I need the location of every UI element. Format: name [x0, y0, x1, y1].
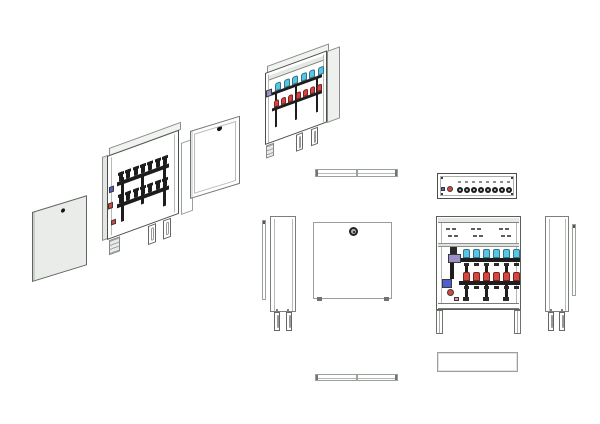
leg-slot [551, 315, 553, 328]
nut [464, 263, 469, 266]
tv-circle [492, 187, 498, 193]
cabinet-leg [514, 310, 521, 334]
vent-slot [507, 235, 511, 237]
tv-dash [493, 181, 496, 183]
nut [484, 286, 489, 289]
drain-fitting-red [111, 219, 116, 226]
iso-front-door [190, 116, 240, 199]
nut [494, 286, 499, 289]
leg-slot [151, 227, 154, 241]
vent-slot [479, 235, 483, 237]
screw-dot [550, 309, 552, 311]
leg-slot [314, 130, 316, 143]
vent-slot [505, 228, 509, 230]
vent-slot [473, 235, 477, 237]
end-cap [395, 375, 397, 380]
screw-dot [276, 309, 278, 311]
tv-circle [478, 187, 484, 193]
base-rail [438, 303, 519, 309]
valve [119, 193, 123, 203]
tv-circle [506, 187, 512, 193]
nut [474, 286, 479, 289]
lock-icon [217, 125, 222, 132]
supply-fitting-blue [441, 187, 445, 191]
valve [148, 183, 152, 193]
cap-blue [493, 249, 500, 258]
leg-slot [562, 315, 564, 328]
cabinet-leg [436, 310, 443, 334]
door-side-view-right [572, 224, 576, 296]
frame-line [274, 219, 275, 311]
lock-icon [61, 208, 65, 213]
nut [494, 263, 499, 266]
tv-dash [479, 181, 482, 183]
drain-valve-red [447, 289, 454, 296]
cap-red [463, 272, 470, 281]
valve [134, 166, 138, 176]
lock-icon [349, 227, 358, 236]
door-foot [384, 297, 389, 301]
fitting-pink [454, 297, 459, 301]
base-bracket [266, 143, 274, 159]
frame-line [441, 223, 442, 303]
return-fitting-red [447, 186, 453, 192]
cabinet-leg [274, 312, 280, 331]
cap-red [483, 272, 490, 281]
return-fitting-red [108, 202, 113, 210]
vent-slot [446, 228, 450, 230]
leg-slot [299, 136, 301, 149]
tv-dash [458, 181, 461, 183]
tv-dash [486, 181, 489, 183]
leg-slot [289, 315, 291, 328]
end-cap [316, 170, 318, 176]
corner-screw [511, 193, 514, 196]
cap-blue [503, 249, 510, 258]
vent-slot [452, 228, 456, 230]
nut [514, 286, 519, 289]
elbow-fitting [483, 297, 489, 301]
valve [148, 161, 152, 171]
supply-fitting-blue [109, 185, 114, 193]
frame-line [323, 55, 324, 123]
screw-dot [287, 309, 289, 311]
end-cap [316, 375, 318, 380]
vent-slot [471, 228, 475, 230]
side-body [545, 216, 569, 312]
valve [126, 169, 130, 179]
cap-blue [463, 249, 470, 258]
nut [514, 263, 519, 266]
hinge-cap [573, 225, 575, 228]
cap-blue [513, 249, 520, 258]
cabinet-top-view [437, 173, 517, 199]
cabinet-leg [296, 132, 303, 152]
frame-line [174, 134, 175, 212]
tv-dash [465, 181, 468, 183]
tv-circle [485, 187, 491, 193]
cap-red [493, 272, 500, 281]
cap-red [513, 272, 520, 281]
cap-blue [473, 249, 480, 258]
frame-line [268, 75, 269, 143]
valve [156, 158, 160, 168]
valve [141, 185, 145, 195]
frame-line [565, 219, 566, 311]
pump [266, 88, 272, 97]
valve [134, 188, 138, 198]
tv-dash [507, 181, 510, 183]
front-body [436, 216, 521, 310]
cabinet-bottom-view [437, 352, 518, 372]
tv-circle [471, 187, 477, 193]
door-foot [317, 297, 322, 301]
iso-back-panel [32, 195, 87, 282]
elbow-fitting [503, 297, 509, 301]
nut [484, 263, 489, 266]
pump-riser [450, 263, 454, 279]
vent-slot [477, 228, 481, 230]
technical-drawing-canvas [0, 0, 600, 424]
pump-fitting [450, 247, 457, 254]
valve [141, 163, 145, 173]
elbow-fitting [463, 297, 469, 301]
corner-screw [440, 193, 443, 196]
cabinet-leg [548, 312, 554, 331]
valve [126, 191, 130, 201]
door-bottom-view [315, 374, 398, 381]
pump [448, 254, 461, 263]
side-body [270, 216, 296, 312]
hinge-cap [263, 221, 265, 224]
base-bracket [109, 236, 120, 255]
vent-slot [501, 235, 505, 237]
corner-screw [511, 176, 514, 179]
tv-circle [464, 187, 470, 193]
valve-blue [442, 279, 452, 288]
cap-blue [483, 249, 490, 258]
manifold-bar-bottom [459, 281, 520, 285]
screw-dot [561, 309, 563, 311]
cabinet-leg [163, 218, 171, 240]
frame-line [292, 219, 293, 311]
valve [163, 155, 167, 165]
manifold-bar-top [459, 258, 520, 262]
nut [504, 286, 509, 289]
door-side-view-left [262, 220, 266, 300]
nut [474, 263, 479, 266]
valve [156, 180, 160, 190]
tv-dash [500, 181, 503, 183]
tv-circle [457, 187, 463, 193]
vent-slot [454, 235, 458, 237]
cabinet-leg [311, 127, 318, 147]
frame-line [549, 219, 550, 311]
tv-circle [499, 187, 505, 193]
tv-dash [472, 181, 475, 183]
nut [504, 263, 509, 266]
valve [119, 171, 123, 181]
center-mark [356, 170, 358, 176]
top-rail [438, 218, 519, 223]
door-front-view [313, 222, 392, 299]
cap-red [503, 272, 510, 281]
end-cap [395, 170, 397, 176]
center-mark [356, 375, 358, 380]
cabinet-leg [286, 312, 292, 331]
cabinet-leg [148, 223, 156, 245]
cabinet-side-face [327, 46, 340, 123]
leg-slot [166, 221, 169, 235]
lock-cylinder [351, 229, 356, 234]
cabinet-leg [559, 312, 565, 331]
nut [464, 286, 469, 289]
vent-slot [448, 235, 452, 237]
door-top-view [315, 169, 398, 177]
vent-slot [499, 228, 503, 230]
valve [163, 177, 167, 187]
corner-screw [440, 176, 443, 179]
leg-slot [277, 315, 279, 328]
cap-red [473, 272, 480, 281]
